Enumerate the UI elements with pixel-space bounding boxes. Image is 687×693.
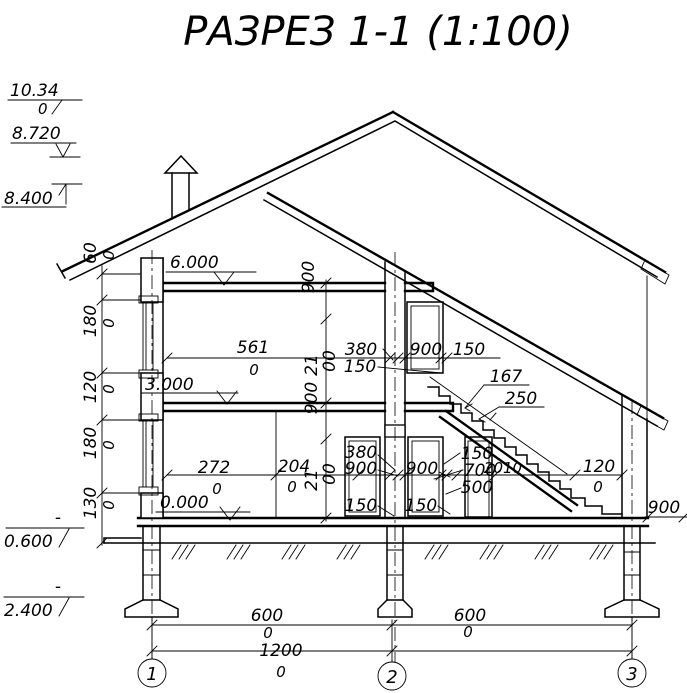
dim-1800-upper: 180 (81, 305, 101, 337)
bottom-dim-labels: 600 0 600 0 1200 0 (251, 606, 486, 681)
dim-6000-span1-0: 0 (263, 624, 273, 642)
dim-500-stair: 500 (461, 478, 493, 498)
dim-2040-0: 0 (287, 478, 297, 496)
dim-2720: 272 (198, 458, 230, 478)
dim-250-tread: 250 (505, 389, 537, 409)
elevation-minus-2400: - 2.400 (4, 577, 84, 621)
axis-1-label: 1 (146, 664, 157, 685)
dim-1200-left-0: 0 (100, 384, 118, 394)
drawing-title: РАЗРЕЗ 1-1 (1:100) (183, 9, 572, 55)
dim-150-upper-left: 150 (344, 357, 376, 377)
dim-900-right: 900 (648, 498, 680, 518)
elevation-10340: 10.34 0 (8, 81, 82, 118)
dim-5610: 561 (237, 338, 269, 358)
ground-line (104, 538, 655, 543)
dim-900-attic: 900 (299, 261, 319, 293)
dim-6000-span2-0: 0 (463, 623, 473, 641)
dim-2040: 204 (278, 457, 310, 477)
dim-1300-left-0: 0 (100, 500, 118, 510)
first-floor-dim-line (162, 453, 627, 516)
section-drawing: РАЗРЕЗ 1-1 (1:100) (0, 0, 687, 693)
dim-1200-porch: 120 (583, 457, 615, 477)
elevation-8720-label: 8.720 (12, 124, 61, 144)
dim-5610-0: 0 (249, 361, 259, 379)
elevation-10340-wrap: 0 (38, 100, 48, 118)
dim-1300-left: 130 (81, 487, 101, 519)
axis-bubbles: 1 2 3 (138, 659, 646, 690)
dim-12000-total: 1200 (259, 641, 302, 661)
axis-3-label: 3 (626, 664, 637, 685)
axis-2-label: 2 (386, 667, 397, 688)
elevation-2400-sign: - (55, 577, 61, 597)
left-dim-labels: 60 0 180 0 120 0 180 0 130 0 (81, 242, 118, 519)
elevation-6000: 6.000 (166, 253, 256, 285)
bottom-dim-lines (147, 617, 637, 662)
dim-900-upper-window: 900 (410, 340, 442, 360)
dim-1800-lower-0: 0 (100, 440, 118, 450)
dim-150-upper-right: 150 (453, 340, 485, 360)
foundation-axis1 (125, 526, 178, 617)
dim-2720-0: 0 (212, 480, 222, 498)
dim-1200-left: 120 (81, 371, 101, 403)
dim-6000-span1: 600 (251, 606, 283, 626)
elevation-0600-label: 0.600 (4, 532, 53, 552)
elevation-8400-label: 8.400 (4, 189, 53, 209)
first-floor-dim-labels: 272 0 204 0 380 900 150 900 150 150 700 … (198, 443, 615, 516)
stair-window (407, 302, 443, 373)
dim-2010: 2010 (484, 459, 522, 477)
dim-600-left-0: 0 (100, 250, 118, 260)
elevation-0000-label: 0.000 (160, 493, 209, 513)
height-dim-chain (321, 278, 331, 523)
right-wall (622, 396, 647, 517)
drawing-sheet: РАЗРЕЗ 1-1 (1:100) (0, 0, 687, 693)
dim-12000-total-0: 0 (276, 663, 286, 681)
dim-1800-lower: 180 (81, 427, 101, 459)
dim-2100-upper-a: 21 (302, 354, 322, 376)
elevation-8720: 8.720 (11, 124, 80, 157)
elevation-8400: 8.400 (2, 184, 82, 209)
elevation-10340-label: 10.34 (10, 81, 59, 101)
elevation-minus-0600: - 0.600 (4, 508, 84, 552)
dim-900-mid: 900 (302, 382, 322, 414)
roof-end-caps (637, 260, 669, 430)
elevation-3000-label: 3.000 (145, 375, 194, 395)
dim-150-door-left: 150 (345, 496, 377, 516)
dim-1200-porch-0: 0 (593, 478, 603, 496)
elevation-0600-sign: - (55, 508, 61, 528)
dim-1800-upper-0: 0 (100, 318, 118, 328)
ground-hatch (172, 545, 613, 559)
dim-600-left: 60 (81, 242, 101, 264)
elevation-2400-label: 2.400 (4, 601, 53, 621)
dim-167-riser: 167 (490, 367, 523, 387)
dim-900-door-left: 900 (345, 459, 377, 479)
second-floor-dim-labels: 561 0 380 150 900 150 (237, 338, 485, 379)
dim-900-door-right: 900 (406, 459, 438, 479)
elevation-0000: 0.000 (156, 493, 250, 520)
elevation-6000-label: 6.000 (170, 253, 219, 273)
dim-150-door-right: 150 (405, 496, 437, 516)
dim-2100-upper-b: 00 (320, 350, 340, 372)
dim-2100-lower-b: 00 (320, 463, 340, 485)
